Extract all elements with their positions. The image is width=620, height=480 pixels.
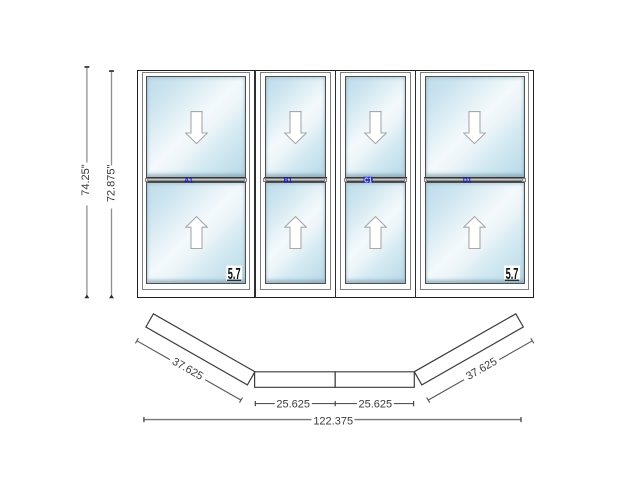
svg-text:B1: B1 — [284, 176, 293, 185]
svg-text:72.875": 72.875" — [106, 165, 118, 203]
svg-text:A1: A1 — [184, 176, 193, 185]
svg-text:25.625: 25.625 — [276, 398, 310, 410]
svg-text:122.375: 122.375 — [313, 416, 353, 428]
svg-text:74.25": 74.25" — [80, 164, 92, 196]
svg-text:5.7: 5.7 — [228, 266, 241, 283]
svg-text:D1: D1 — [463, 176, 472, 185]
svg-text:25.625: 25.625 — [358, 398, 392, 410]
svg-text:37.625: 37.625 — [464, 356, 499, 383]
svg-text:5.7: 5.7 — [506, 266, 519, 283]
svg-text:C1: C1 — [364, 175, 372, 184]
svg-text:37.625: 37.625 — [170, 356, 205, 383]
